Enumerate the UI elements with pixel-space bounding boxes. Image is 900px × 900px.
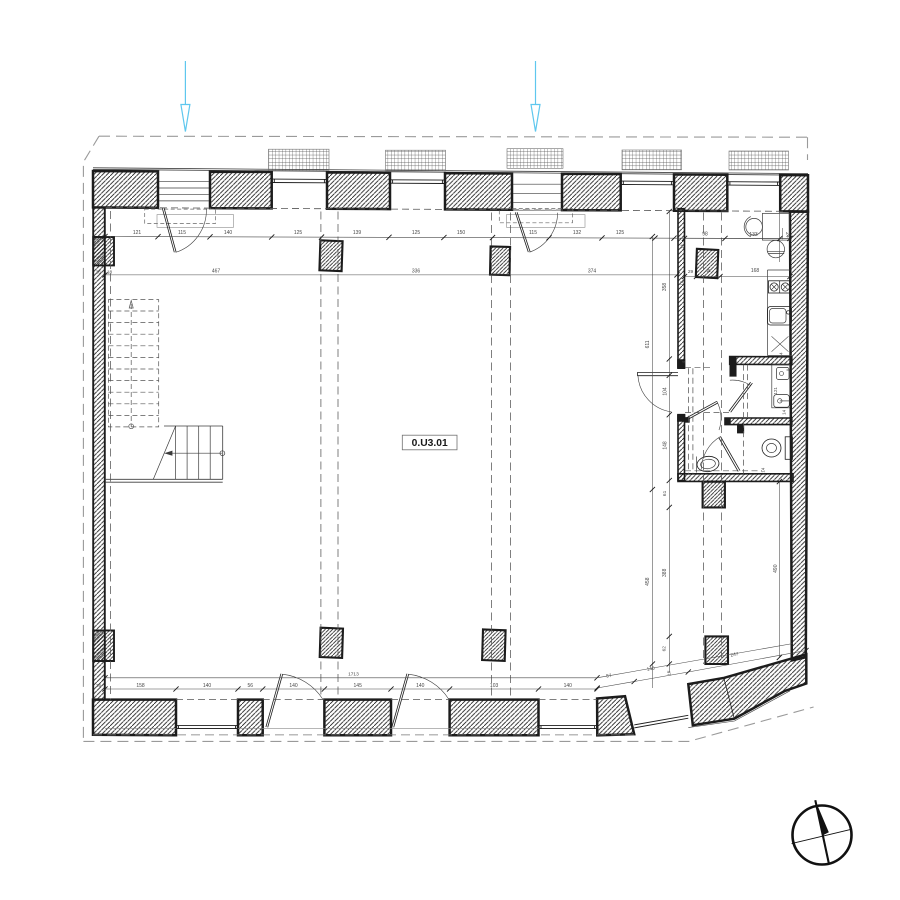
svg-text:150: 150 [457,230,466,236]
svg-text:26: 26 [96,683,102,688]
svg-text:125: 125 [294,230,303,236]
svg-text:148: 148 [663,441,669,450]
svg-text:336: 336 [412,269,421,275]
svg-text:29: 29 [688,269,694,275]
svg-text:1713: 1713 [348,672,359,678]
svg-text:490: 490 [773,564,779,573]
svg-text:103: 103 [490,683,499,689]
svg-text:611: 611 [645,340,651,348]
svg-text:121: 121 [773,387,778,395]
svg-text:24: 24 [784,232,790,238]
svg-text:133: 133 [749,232,758,238]
svg-text:0.U3.01: 0.U3.01 [412,438,448,449]
svg-text:145: 145 [354,683,363,689]
svg-text:18: 18 [107,269,113,274]
svg-text:140: 140 [416,683,425,689]
svg-text:139: 139 [353,230,362,236]
svg-text:388: 388 [662,568,668,577]
svg-text:125: 125 [412,230,421,236]
svg-text:26: 26 [96,269,102,274]
svg-text:168: 168 [751,268,760,274]
svg-text:115: 115 [529,230,537,236]
svg-text:115: 115 [178,230,186,236]
svg-text:98: 98 [702,232,708,238]
svg-text:132: 132 [573,230,582,236]
svg-text:374: 374 [588,269,597,275]
svg-text:467: 467 [212,269,221,275]
svg-text:458: 458 [645,577,651,586]
svg-text:14: 14 [679,244,684,249]
svg-text:14: 14 [761,467,766,472]
svg-text:358: 358 [662,283,668,292]
svg-text:121: 121 [133,230,142,236]
svg-text:61: 61 [662,490,668,496]
svg-text:140: 140 [224,230,233,236]
svg-text:14: 14 [782,409,787,414]
svg-text:104: 104 [663,387,669,396]
svg-text:140: 140 [289,683,298,689]
svg-text:158: 158 [136,683,145,689]
svg-text:62: 62 [662,646,668,652]
svg-text:125: 125 [616,230,625,236]
svg-text:14: 14 [679,280,684,285]
svg-text:56: 56 [248,683,254,689]
svg-text:14: 14 [779,352,784,357]
svg-text:45: 45 [705,268,711,274]
svg-text:140: 140 [203,683,212,689]
svg-text:140: 140 [564,683,573,689]
